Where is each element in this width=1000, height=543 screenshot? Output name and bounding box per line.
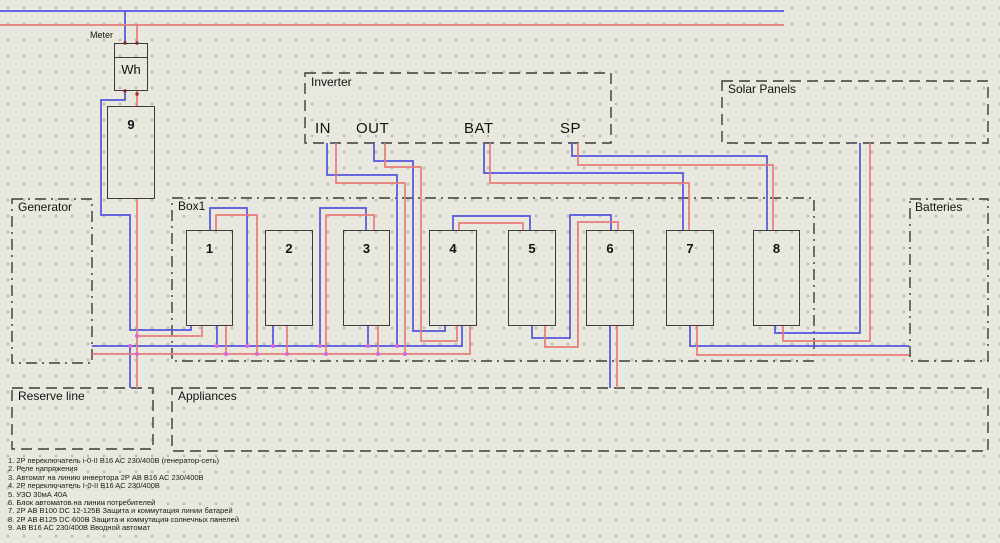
region-label-box1: Box1 — [176, 200, 207, 213]
wire-neutral-box7-batteries — [690, 326, 909, 346]
inverter-terminal-out: OUT — [356, 121, 389, 137]
junction-dots — [128, 334, 407, 356]
component-legend: 1. 2P переключатель i-0-II B16 AC 230/40… — [8, 457, 239, 533]
component-8-solar-breaker: 8 — [753, 230, 800, 326]
inverter-terminal-in: IN — [315, 121, 331, 137]
region-label-reserve-line: Reserve line — [16, 390, 87, 403]
component-number: 5 — [528, 241, 535, 256]
component-4-switch: 4 — [429, 230, 477, 326]
component-number: 4 — [449, 241, 456, 256]
region-label-solar-panels: Solar Panels — [726, 83, 798, 96]
generator-region-outline — [12, 199, 92, 363]
wire-live-branch-box1 — [137, 326, 202, 336]
component-2-voltage-relay: 2 — [265, 230, 313, 326]
component-number: 3 — [363, 241, 370, 256]
component-7-battery-breaker: 7 — [666, 230, 714, 326]
wiring-diagram-canvas: { "colors":{ "bg":"#e9e8df", "grid-dot":… — [0, 0, 1000, 543]
batteries-region-outline — [910, 199, 988, 361]
region-label-batteries: Batteries — [913, 201, 964, 214]
component-5-rcd: 5 — [508, 230, 556, 326]
region-label-generator: Generator — [16, 201, 74, 214]
region-label-appliances: Appliances — [176, 390, 239, 403]
meter-label: Meter — [90, 30, 113, 40]
component-3-inverter-breaker: 3 — [343, 230, 390, 326]
inverter-terminal-sp: SP — [560, 121, 581, 137]
meter-divider — [115, 57, 147, 58]
component-number: 8 — [773, 241, 780, 256]
inverter-terminal-bat: BAT — [464, 121, 494, 137]
component-main-breaker-9: 9 — [107, 106, 155, 199]
component-number: 2 — [285, 241, 292, 256]
energy-meter: Wh — [114, 43, 148, 91]
appliances-region-outline — [172, 388, 988, 451]
region-label-inverter: Inverter — [309, 76, 354, 89]
component-1-switch-gen-grid: 1 — [186, 230, 233, 326]
component-number: 9 — [127, 117, 134, 132]
wire-neutral-inverter-sp — [572, 143, 767, 230]
wire-live-box4-box5-arc — [459, 223, 523, 230]
component-6-breaker-block: 6 — [586, 230, 634, 326]
meter-unit: Wh — [115, 62, 147, 77]
legend-line: 9. АВ B16 AC 230/400В Вводной автомат — [8, 524, 239, 532]
component-number: 1 — [206, 241, 213, 256]
component-number: 6 — [606, 241, 613, 256]
component-number: 7 — [686, 241, 693, 256]
